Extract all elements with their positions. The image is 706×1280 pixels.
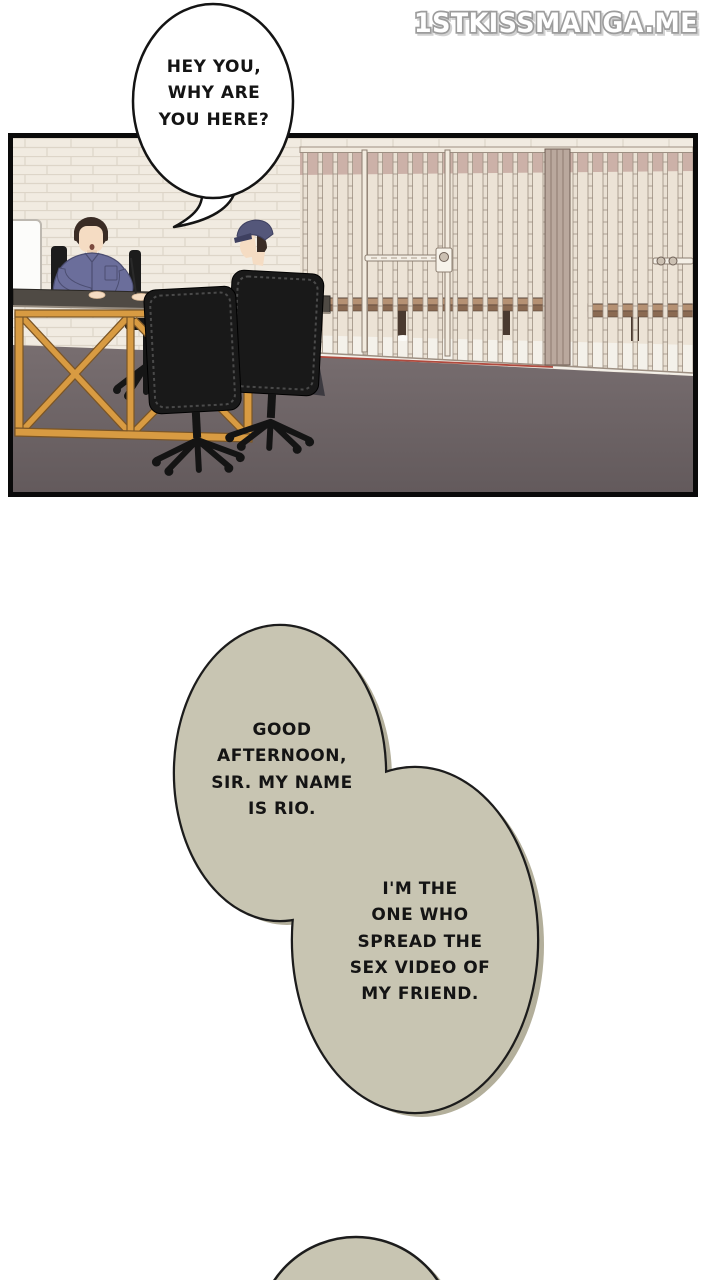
bubble-line: I'M THE <box>322 876 518 902</box>
bubble-seam-patch <box>192 171 244 195</box>
bubble-line: ONE WHO <box>322 902 518 928</box>
bubble-line: GOOD <box>196 717 368 743</box>
bubble-line: SEX VIDEO OF <box>322 955 518 981</box>
neck <box>251 252 265 266</box>
site-watermark: 1STKISSMANGA.ME 1STKISSMANGA.ME <box>398 2 704 44</box>
cell-door-lock-right <box>653 257 693 265</box>
speech-bubble-2-3 <box>158 612 560 1124</box>
mouth <box>90 244 95 250</box>
whiteboard <box>13 220 41 298</box>
hair-side <box>74 230 78 241</box>
cell-bars <box>300 150 693 373</box>
speech-bubble-partial <box>254 1232 458 1280</box>
speech-bubble-3-text: I'M THE ONE WHO SPREAD THE SEX VIDEO OF … <box>322 876 518 1008</box>
bubble-line: SPREAD THE <box>322 929 518 955</box>
bubble-body <box>258 1237 454 1280</box>
bubble-line: SIR. MY NAME <box>196 770 368 796</box>
bubble-line: YOU HERE? <box>126 107 302 133</box>
speech-bubble-2-text: GOOD AFTERNOON, SIR. MY NAME IS RIO. <box>196 717 368 822</box>
bubble-line: MY FRIEND. <box>322 981 518 1007</box>
hand <box>89 292 105 299</box>
cell-door-post-left <box>362 150 367 352</box>
bubble-line: IS RIO. <box>196 796 368 822</box>
bubble-line: AFTERNOON, <box>196 743 368 769</box>
jail-cells <box>300 147 693 375</box>
cell-divider-post <box>545 149 570 365</box>
bubble-line: HEY YOU, <box>126 54 302 80</box>
panel-artwork <box>13 138 693 492</box>
speech-bubble-1-text: HEY YOU, WHY ARE YOU HERE? <box>126 54 302 133</box>
watermark-text: 1STKISSMANGA.ME <box>414 8 698 39</box>
manga-page: 1STKISSMANGA.ME 1STKISSMANGA.ME <box>0 0 706 1280</box>
hair-side <box>104 230 108 241</box>
bubble-line: WHY ARE <box>126 80 302 106</box>
bars-top-rail <box>300 147 693 153</box>
comic-panel <box>8 133 698 497</box>
